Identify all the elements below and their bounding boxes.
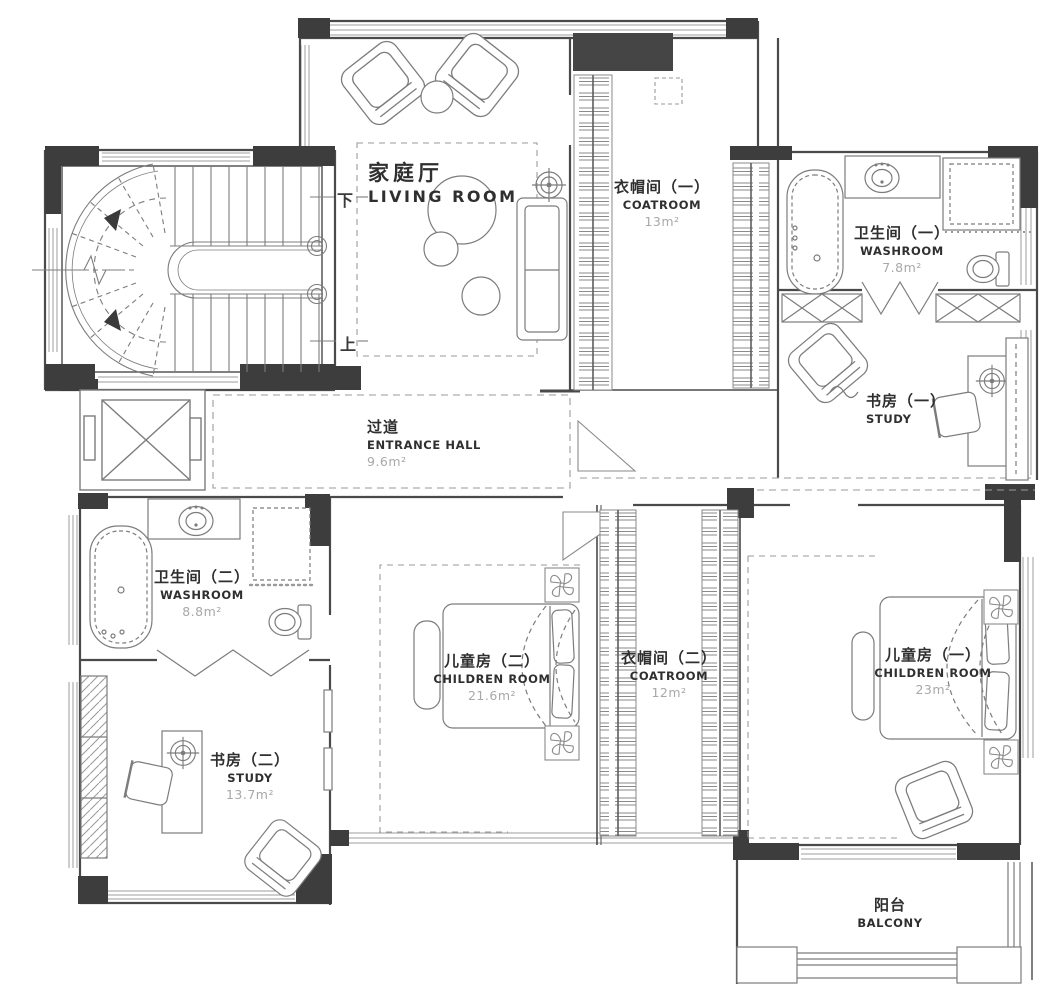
room-label-coatroom-1: 衣帽间（一） COATROOM 13m² — [614, 178, 710, 231]
sofa-icon — [517, 198, 567, 340]
shower-icon — [253, 508, 310, 580]
room-label-coatroom-2: 衣帽间（二） COATROOM 12m² — [621, 649, 717, 702]
armchair-icon — [337, 37, 430, 130]
bookshelf — [81, 676, 107, 858]
room-name-zh: 卫生间（一） — [854, 224, 950, 244]
room-name-en: CHILDREN ROOM — [433, 672, 550, 687]
cabinet — [1006, 338, 1028, 480]
floor-plan-page: 家庭厅 LIVING ROOM 衣帽间（一） COATROOM 13m² 卫生间… — [0, 0, 1063, 1000]
armchair-icon — [892, 758, 976, 842]
elevator-shaft — [80, 390, 205, 490]
coatroom-1-racks — [574, 75, 769, 390]
room-label-study-1: 书房（一） STUDY — [866, 392, 946, 426]
room-name-zh: 家庭厅 — [368, 160, 518, 187]
room-name-en: WASHROOM — [154, 588, 250, 603]
room-name-zh: 书房（二） — [210, 751, 290, 771]
room-label-washroom-1: 卫生间（一） WASHROOM 7.8m² — [854, 224, 950, 277]
room-name-en: ENTRANCE HALL — [367, 438, 481, 453]
ceiling-fan-icon — [984, 740, 1018, 774]
room-name-en: WASHROOM — [854, 244, 950, 259]
room-area: 9.6m² — [367, 454, 481, 470]
room-name-zh: 过道 — [367, 418, 481, 438]
room-label-study-2: 书房（二） STUDY 13.7m² — [210, 751, 290, 804]
room-name-en: STUDY — [866, 412, 946, 427]
floor-plan-drawing — [0, 0, 1063, 1000]
room-name-en: BALCONY — [857, 916, 922, 931]
staircase — [32, 164, 368, 376]
bench — [852, 632, 874, 720]
study-2-furniture — [81, 676, 332, 901]
room-name-zh: 儿童房（二） — [433, 652, 550, 672]
folding-door-icon — [862, 282, 938, 314]
room-name-zh: 儿童房（一） — [874, 646, 991, 666]
stair-down-label: 下 — [337, 187, 353, 211]
room-name-en: STUDY — [210, 771, 290, 786]
toilet-icon — [269, 605, 311, 639]
room-area: 23m² — [874, 682, 991, 698]
armchair-icon — [784, 319, 872, 407]
ceiling-fan-icon — [545, 568, 579, 602]
room-area: 7.8m² — [854, 260, 950, 276]
room-area: 13.7m² — [210, 787, 290, 803]
bathtub-icon — [787, 170, 843, 294]
room-area: 8.8m² — [154, 604, 250, 620]
door-leaf-icon — [578, 421, 635, 471]
room-name-en: COATROOM — [614, 198, 710, 213]
desk-chair-icon — [125, 760, 174, 806]
room-area: 21.6m² — [433, 688, 550, 704]
shower-icon — [943, 158, 1020, 230]
room-name-en: COATROOM — [621, 669, 717, 684]
room-name-en: CHILDREN ROOM — [874, 666, 991, 681]
room-label-children-room-2: 儿童房（二） CHILDREN ROOM 21.6m² — [433, 652, 550, 705]
room-name-zh: 阳台 — [857, 896, 922, 916]
room-name-en: LIVING ROOM — [368, 187, 518, 208]
room-area: 13m² — [614, 214, 710, 230]
room-label-washroom-2: 卫生间（二） WASHROOM 8.8m² — [154, 568, 250, 621]
room-name-zh: 书房（一） — [866, 392, 946, 412]
room-area: 12m² — [621, 685, 717, 701]
folding-door-icon — [157, 650, 309, 676]
bathtub-icon — [90, 526, 152, 648]
room-name-zh: 卫生间（二） — [154, 568, 250, 588]
room-label-children-room-1: 儿童房（一） CHILDREN ROOM 23m² — [874, 646, 991, 699]
room-name-zh: 衣帽间（二） — [621, 649, 717, 669]
room-label-balcony: 阳台 BALCONY — [857, 896, 922, 930]
room-label-entrance-hall: 过道 ENTRANCE HALL 9.6m² — [367, 418, 481, 471]
stair-up-label: 上 — [340, 331, 356, 355]
room-name-zh: 衣帽间（一） — [614, 178, 710, 198]
ceiling-fan-icon — [984, 590, 1018, 624]
ceiling-fan-icon — [545, 726, 579, 760]
storage-bench — [782, 294, 1020, 322]
sink-icon — [179, 506, 213, 536]
sink-icon — [865, 163, 899, 193]
toilet-icon — [967, 252, 1009, 286]
room-label-living-room: 家庭厅 LIVING ROOM — [368, 160, 518, 208]
children-room-1-furniture — [852, 590, 1018, 842]
